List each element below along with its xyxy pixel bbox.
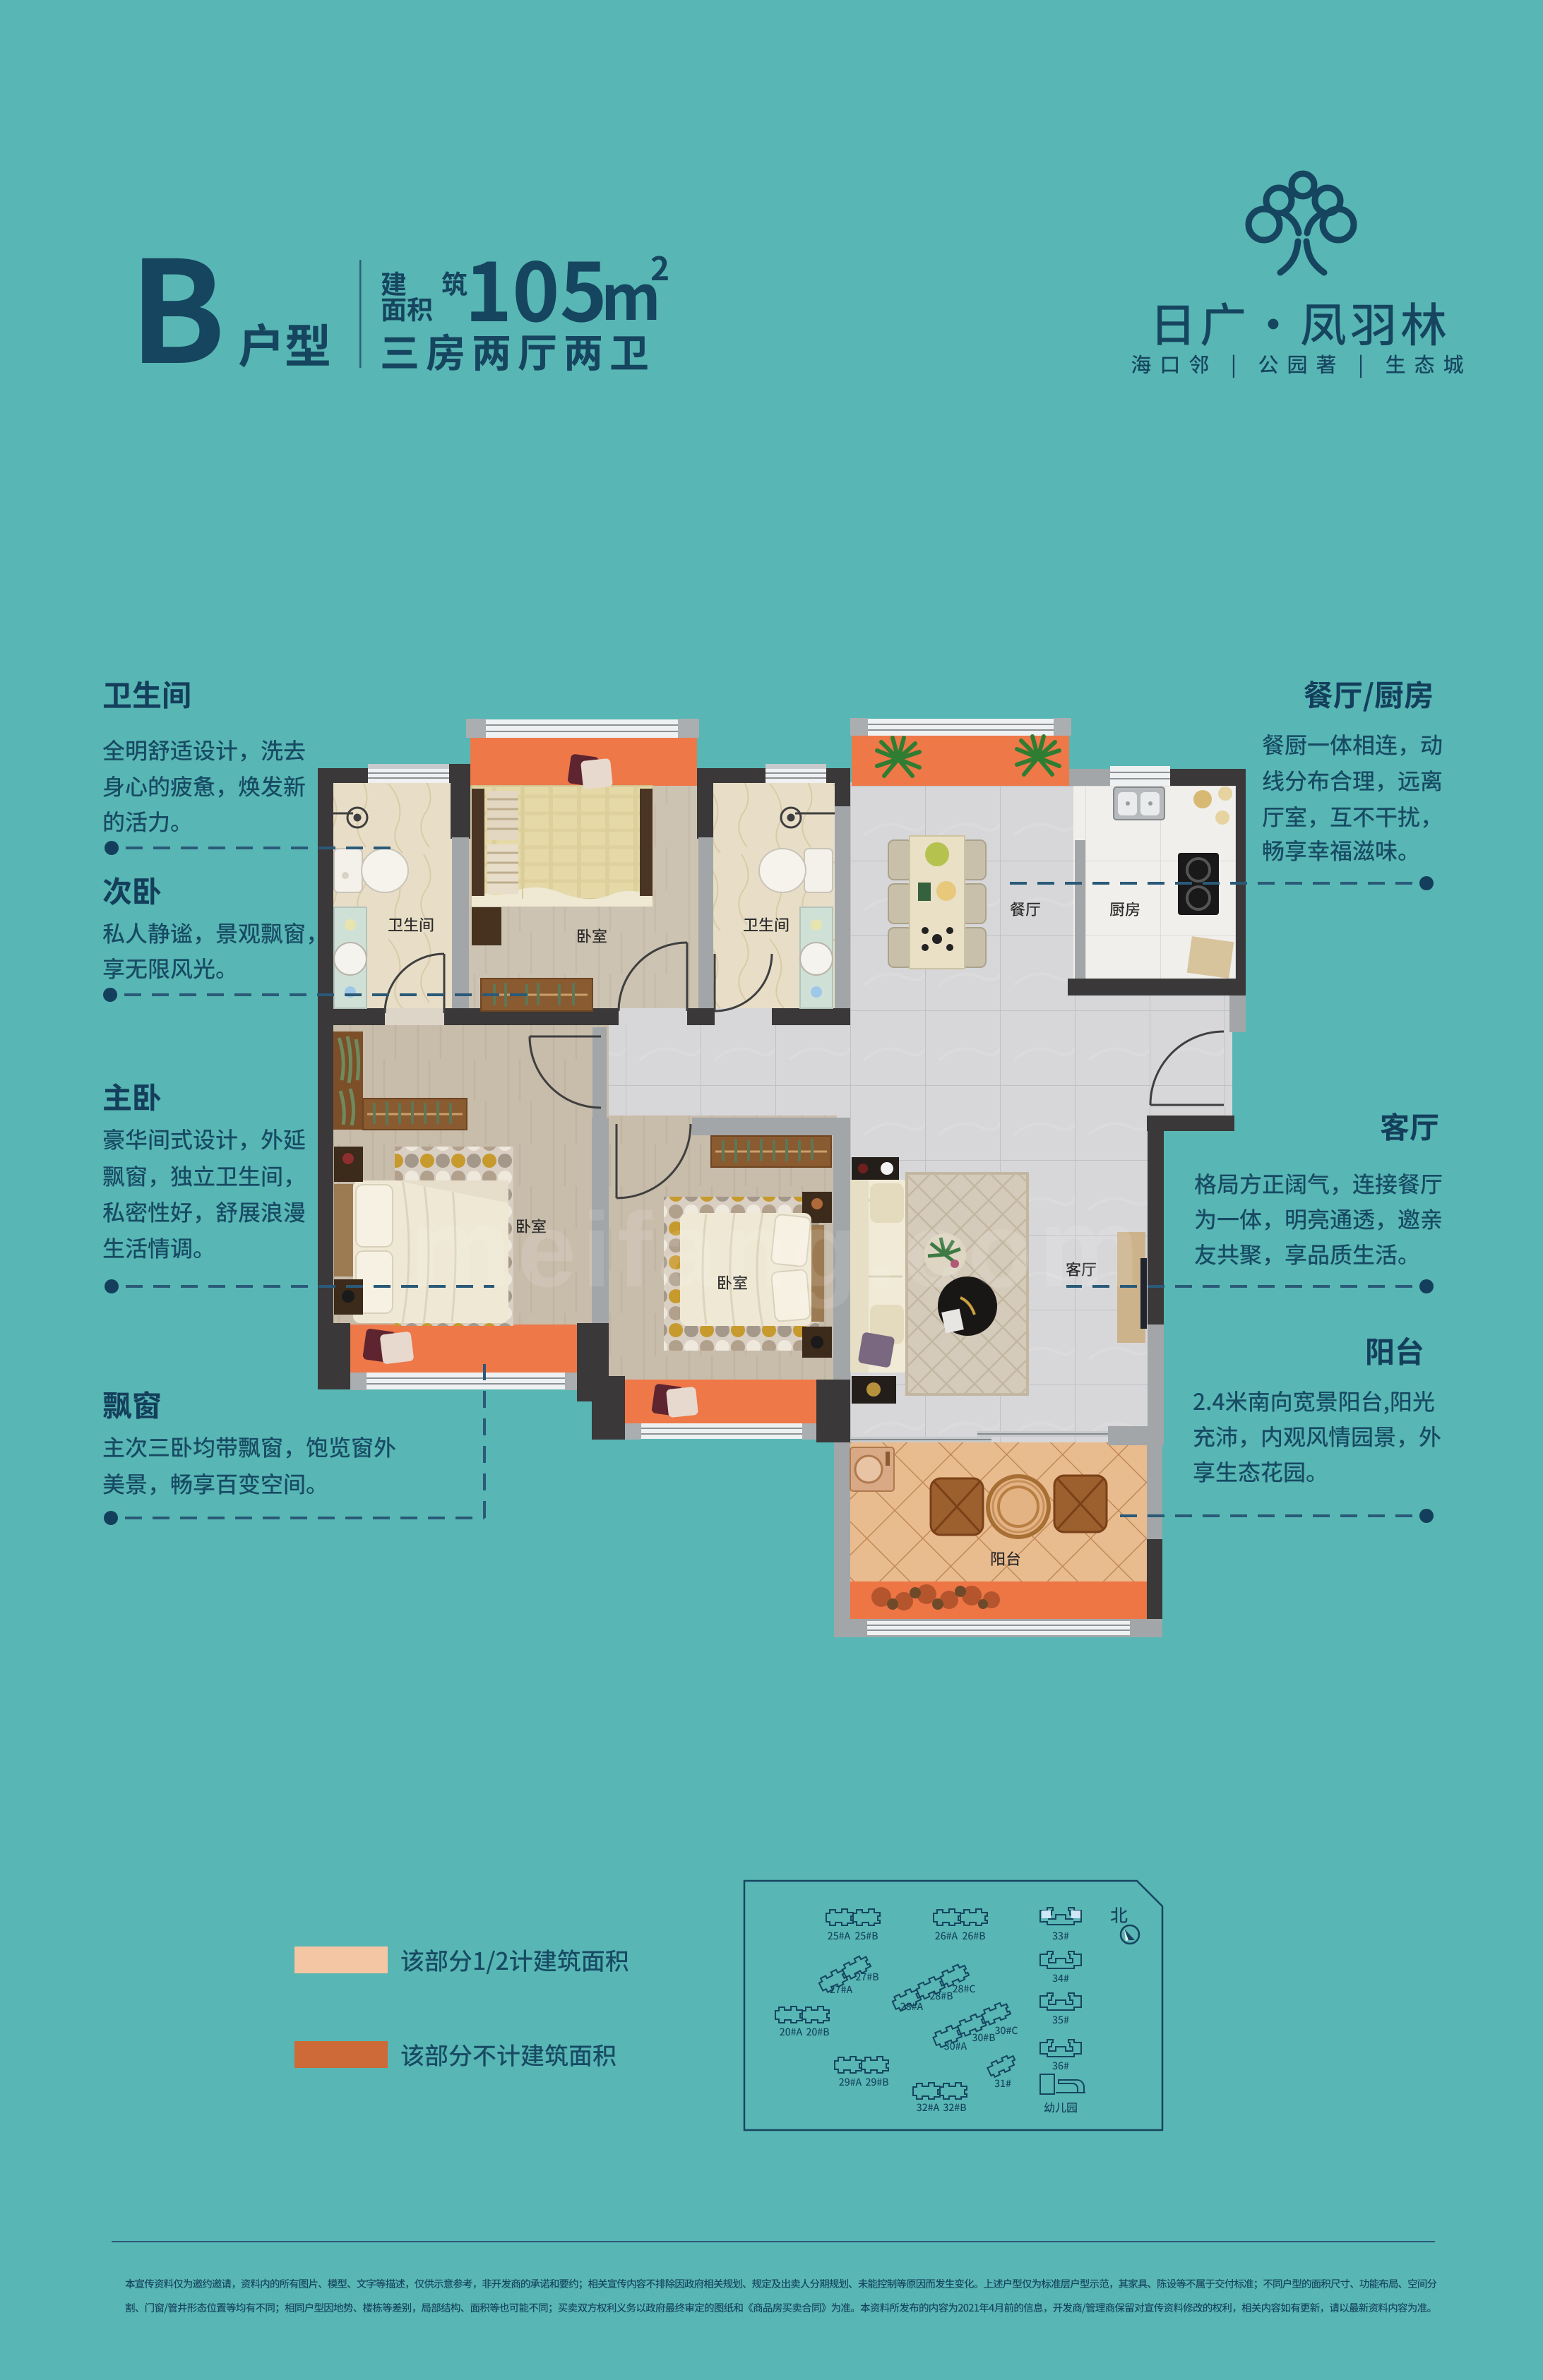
- svg-text:全明舒适设计，洗去: 全明舒适设计，洗去: [102, 734, 306, 766]
- svg-text:阳台: 阳台: [990, 1547, 1021, 1569]
- svg-text:27#A: 27#A: [830, 1983, 853, 1997]
- svg-text:北: 北: [1110, 1902, 1128, 1927]
- svg-text:29#A: 29#A: [839, 2075, 862, 2089]
- svg-text:30#A: 30#A: [944, 2039, 967, 2053]
- svg-text:卫生间: 卫生间: [102, 672, 191, 715]
- svg-text:28#B: 28#B: [929, 1989, 953, 2003]
- svg-text:meifang.com: meifang.com: [410, 1164, 1146, 1317]
- svg-text:该部分不计建筑面积: 该部分不计建筑面积: [400, 2037, 616, 2071]
- svg-text:海口邻 | 公园著 | 生态城: 海口邻 | 公园著 | 生态城: [1131, 349, 1472, 378]
- svg-text:豪华间式设计，外延: 豪华间式设计，外延: [102, 1123, 306, 1155]
- svg-text:2: 2: [650, 244, 669, 290]
- svg-text:27#B: 27#B: [855, 1970, 878, 1984]
- svg-text:阳台: 阳台: [1365, 1329, 1424, 1372]
- svg-text:主次三卧均带飘窗，饱览窗外: 主次三卧均带飘窗，饱览窗外: [102, 1430, 396, 1463]
- svg-text:享生态花园。: 享生态花园。: [1193, 1455, 1328, 1488]
- svg-text:享无限风光。: 享无限风光。: [102, 952, 238, 984]
- svg-text:34#: 34#: [1052, 1971, 1069, 1985]
- svg-text:飘窗: 飘窗: [102, 1382, 162, 1425]
- svg-text:该部分1/2计建筑面积: 该部分1/2计建筑面积: [400, 1942, 629, 1977]
- svg-text:美景，畅享百变空间。: 美景，畅享百变空间。: [102, 1467, 328, 1500]
- svg-text:私密性好，舒展浪漫: 私密性好，舒展浪漫: [102, 1195, 306, 1228]
- svg-text:32#B: 32#B: [943, 2100, 966, 2115]
- svg-text:客厅: 客厅: [1380, 1104, 1439, 1147]
- svg-text:三房两厅两卫: 三房两厅两卫: [380, 322, 655, 379]
- svg-text:为一体，明亮通透，邀亲: 为一体，明亮通透，邀亲: [1194, 1202, 1443, 1235]
- svg-text:厨房: 厨房: [1109, 897, 1140, 920]
- svg-text:线分布合理，远离: 线分布合理，远离: [1262, 764, 1443, 796]
- svg-text:卧室: 卧室: [576, 924, 607, 947]
- svg-text:26#B: 26#B: [962, 1929, 985, 1943]
- svg-text:幼儿园: 幼儿园: [1044, 2098, 1078, 2115]
- svg-text:26#A: 26#A: [935, 1929, 958, 1943]
- svg-text:户型: 户型: [238, 309, 331, 377]
- svg-text:28#A: 28#A: [900, 1999, 924, 2014]
- svg-text:35#: 35#: [1052, 2013, 1069, 2027]
- svg-text:本宣传资料仅为邀约邀请，资料内的所有图片、模型、文字等描述，: 本宣传资料仅为邀约邀请，资料内的所有图片、模型、文字等描述，仅供示意参考，非开发…: [125, 2276, 1437, 2291]
- svg-text:36#: 36#: [1052, 2059, 1069, 2073]
- svg-text:面积: 面积: [381, 289, 433, 327]
- svg-text:32#A: 32#A: [917, 2100, 940, 2115]
- svg-text:日广·凤羽林: 日广·凤羽林: [1150, 288, 1450, 356]
- svg-text:飘窗，独立卫生间，: 飘窗，独立卫生间，: [102, 1159, 306, 1192]
- svg-text:次卧: 次卧: [102, 868, 162, 911]
- svg-text:格局方正阔气，连接餐厅: 格局方正阔气，连接餐厅: [1194, 1167, 1443, 1200]
- svg-text:28#C: 28#C: [953, 1982, 976, 1996]
- svg-text:生活情调。: 生活情调。: [102, 1231, 215, 1264]
- svg-text:充沛，内观风情园景，外: 充沛，内观风情园景，外: [1193, 1420, 1441, 1452]
- svg-text:割、门窗/管井形态位置等均有不同；相同户型因地势、楼栋等差别: 割、门窗/管井形态位置等均有不同；相同户型因地势、楼栋等差别，局部结构、面积等也…: [125, 2300, 1437, 2315]
- svg-text:33#: 33#: [1052, 1929, 1069, 1943]
- svg-text:25#B: 25#B: [854, 1929, 878, 1943]
- svg-text:主卧: 主卧: [102, 1075, 162, 1118]
- svg-text:卫生间: 卫生间: [743, 913, 790, 935]
- svg-text:畅享幸福滋味。: 畅享幸福滋味。: [1262, 834, 1420, 866]
- svg-text:30#B: 30#B: [972, 2031, 995, 2045]
- svg-text:25#A: 25#A: [828, 1929, 851, 1943]
- svg-text:20#A: 20#A: [780, 2025, 803, 2039]
- svg-text:餐厅: 餐厅: [1010, 897, 1041, 920]
- svg-text:厅室，互不干扰，: 厅室，互不干扰，: [1262, 800, 1443, 832]
- svg-text:餐厨一体相连，动: 餐厨一体相连，动: [1262, 728, 1443, 760]
- svg-text:友共聚，享品质生活。: 友共聚，享品质生活。: [1194, 1238, 1420, 1270]
- svg-text:的活力。: 的活力。: [102, 805, 193, 837]
- svg-text:2.4米南向宽景阳台,阳光: 2.4米南向宽景阳台,阳光: [1193, 1385, 1435, 1417]
- svg-text:卫生间: 卫生间: [388, 913, 434, 935]
- svg-text:29#B: 29#B: [865, 2075, 888, 2089]
- svg-text:身心的疲惫，焕发新: 身心的疲惫，焕发新: [102, 770, 306, 802]
- svg-text:31#: 31#: [994, 2076, 1011, 2091]
- svg-text:30#C: 30#C: [995, 2023, 1018, 2038]
- svg-text:20#B: 20#B: [806, 2025, 829, 2039]
- svg-text:餐厅/厨房: 餐厅/厨房: [1304, 672, 1434, 715]
- svg-text:B: B: [129, 199, 225, 404]
- svg-text:私人静谧，景观飘窗，: 私人静谧，景观飘窗，: [102, 916, 328, 949]
